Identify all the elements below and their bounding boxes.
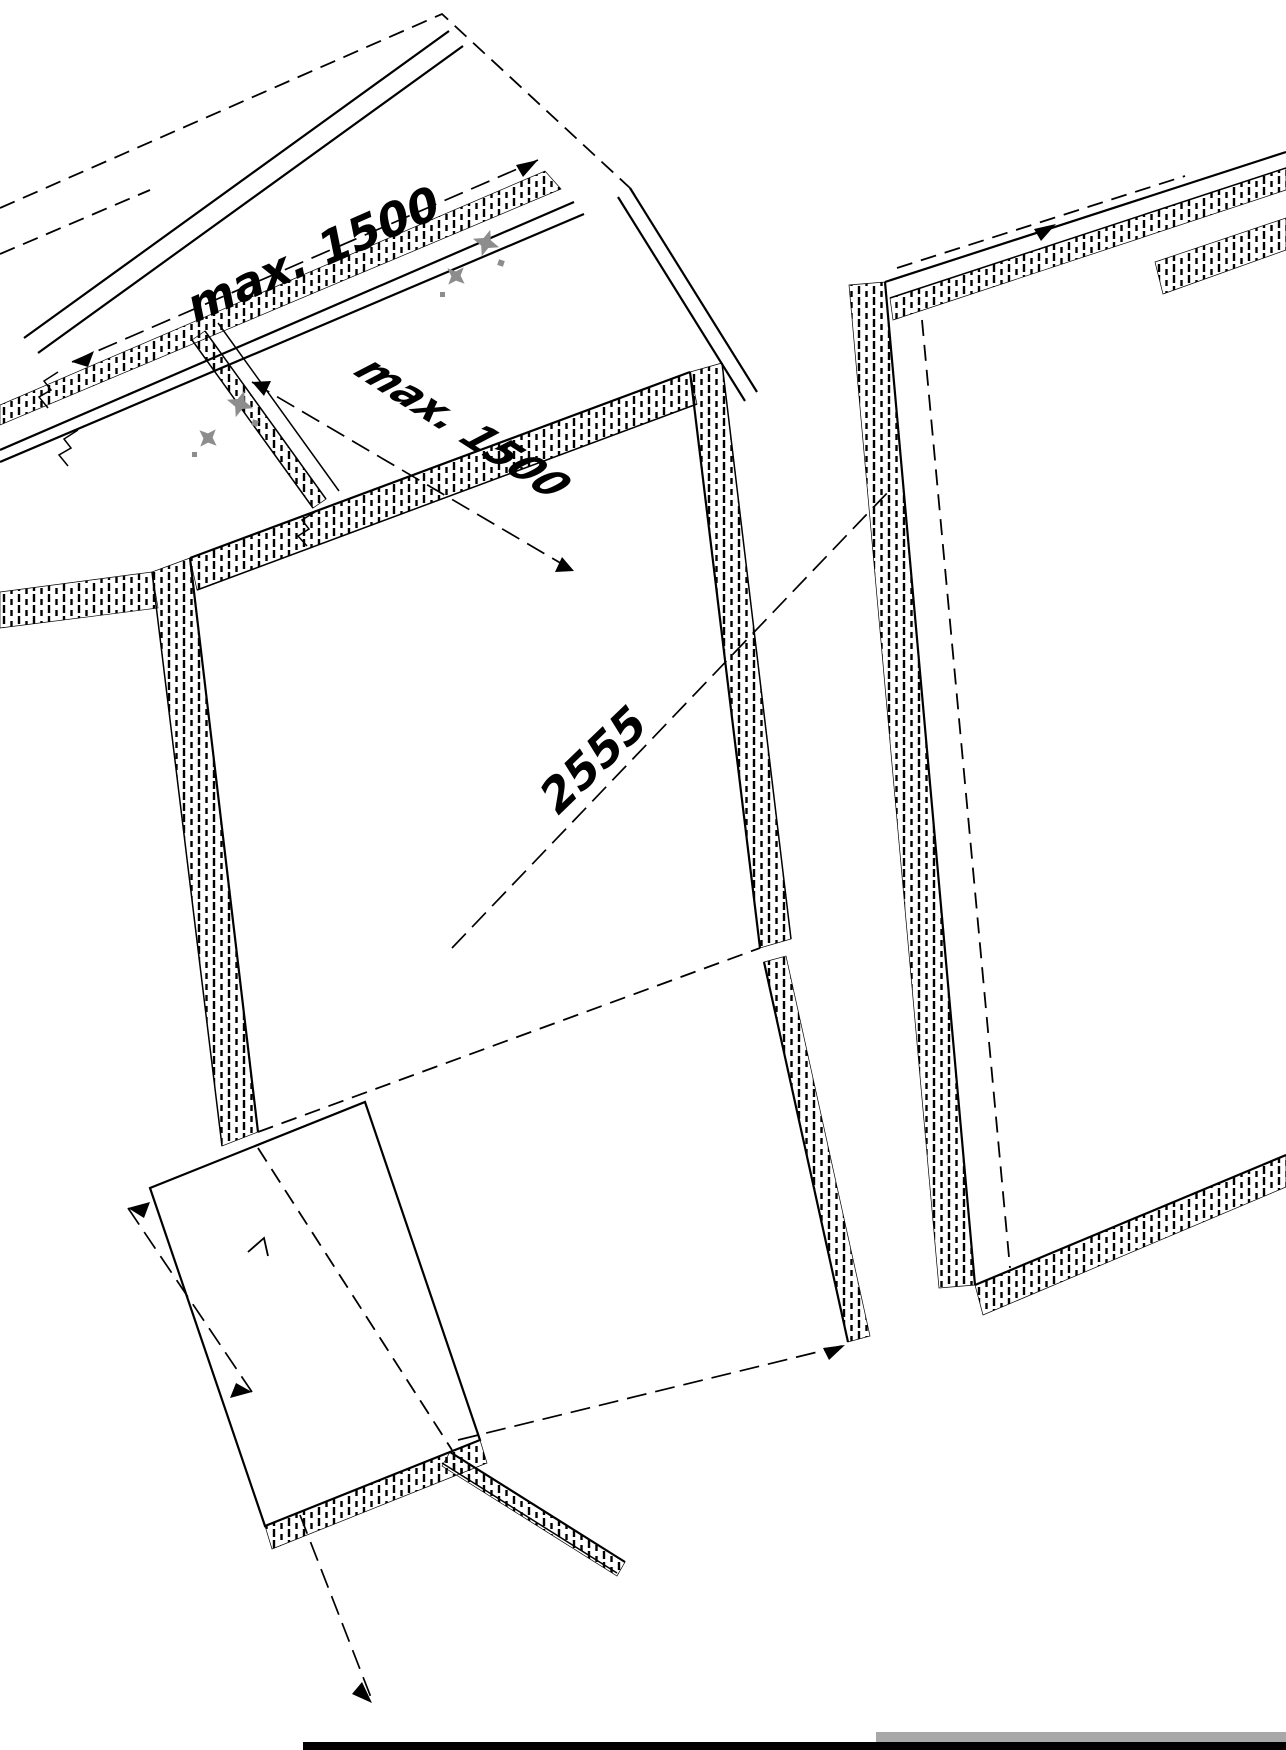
- dimension-line: [452, 490, 890, 948]
- left-panel: [0, 363, 791, 1146]
- dimension-line: [300, 1515, 372, 1700]
- technical-drawing-page: max. 1500 max. 1500: [0, 0, 1286, 1750]
- arrowhead: [1034, 224, 1056, 241]
- open-arrowhead: [248, 1238, 268, 1256]
- arrowhead: [128, 1202, 150, 1218]
- lower-panel-piece: [258, 956, 870, 1576]
- right-panel: [849, 152, 1286, 1315]
- top-rail-hatch: [0, 171, 561, 425]
- drawing-canvas: max. 1500 max. 1500: [0, 0, 1286, 1750]
- screw-head-star: [192, 422, 225, 455]
- dimension-line: [128, 1208, 252, 1392]
- page-gray-strip: [876, 1732, 1286, 1742]
- left-panel-left-hatch: [152, 558, 258, 1146]
- dimension-line: [458, 1346, 842, 1440]
- side-rail-hatch: [192, 331, 326, 508]
- arrowhead: [516, 160, 538, 177]
- arrowhead: [72, 351, 94, 367]
- lower-piece-right-hatch: [764, 956, 870, 1342]
- phantom-edge-line: [0, 190, 150, 254]
- left-panel-right-hatch: [690, 363, 791, 948]
- screw-fragment: [192, 452, 197, 457]
- right-panel-bottom-hatch: [975, 1155, 1286, 1315]
- dimension-label-panel: 2555: [533, 692, 654, 827]
- small-profile-piece: [128, 1102, 487, 1703]
- rail-connector-line: [618, 188, 757, 401]
- bottom-page-rule: [303, 1742, 1286, 1750]
- dimension-panel-edge: 2555: [452, 490, 890, 948]
- lower-piece-hatch: [442, 1452, 625, 1576]
- lower-piece-hidden-edge: [258, 1148, 452, 1450]
- right-panel-left-hatch: [849, 282, 975, 1288]
- screw-fragment: [440, 292, 445, 297]
- left-panel-bottom-hidden-edge: [258, 948, 760, 1132]
- arrowhead: [230, 1383, 252, 1398]
- screw-fragment: [497, 259, 505, 267]
- arrowhead: [823, 1345, 845, 1360]
- right-panel-corner-hatch: [1155, 218, 1286, 294]
- arrowhead: [555, 557, 574, 572]
- left-panel-left-hatch-outer: [0, 572, 158, 628]
